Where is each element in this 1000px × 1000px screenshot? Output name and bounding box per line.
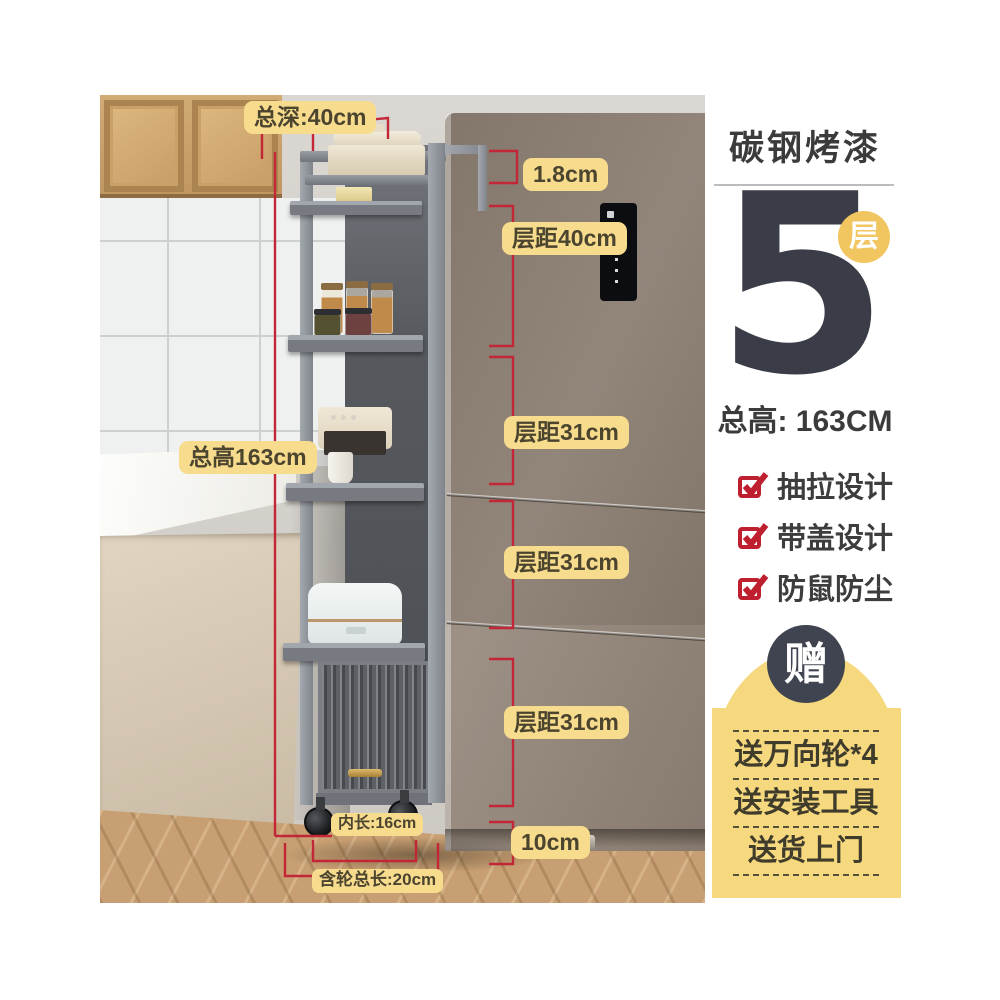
rack-tray-4 [283, 643, 425, 661]
tier-unit-badge: 层 [838, 211, 890, 263]
rack-tray-3 [286, 483, 424, 501]
product-listing-image: 总深:40cm 总高163cm 1.8cm 层距40cm 层距31cm 层距31… [0, 0, 1000, 1000]
tier-count: 5 [716, 162, 889, 410]
rack-tray-1 [290, 201, 422, 215]
gift-item: 送安装工具 [733, 778, 879, 826]
label-tier-gap-3: 层距31cm [504, 546, 629, 579]
gift-item: 送货上门 [733, 826, 879, 874]
label-total-height: 总高163cm [179, 441, 317, 474]
total-height-text: 总高: 163CM [705, 396, 905, 440]
casserole-pot [328, 145, 425, 176]
label-tier-gap-4: 层距31cm [504, 706, 629, 739]
coffee-machine-button [341, 415, 346, 420]
checkbox-check-icon [737, 521, 769, 551]
label-total-depth: 总深:40cm [244, 101, 376, 134]
feature-label: 防鼠防尘 [777, 566, 893, 608]
label-inner-length: 内长:16cm [331, 813, 423, 836]
caster-wheel [304, 807, 334, 837]
label-tier-gap-2: 层距31cm [504, 416, 629, 449]
coffee-cup [328, 452, 353, 484]
coffee-machine-button [331, 415, 336, 420]
rack-floor-shadow [280, 837, 550, 873]
kitchen-photo [100, 95, 705, 903]
rack-handle-leg [478, 145, 487, 211]
coffee-machine-button [351, 415, 356, 420]
cabinet-door [104, 100, 184, 192]
feature-label: 带盖设计 [777, 515, 893, 557]
base-cabinet [100, 533, 302, 827]
checkbox-check-icon [737, 470, 769, 500]
feature-item: 带盖设计 [737, 515, 893, 557]
rack-right-post [428, 143, 445, 803]
label-length-with-wheels: 含轮总长:20cm [312, 869, 443, 893]
gift-item: 送万向轮*4 [733, 730, 879, 778]
door-handle [348, 769, 382, 777]
rack-tray-2 [288, 335, 423, 352]
gift-list-end [733, 874, 879, 876]
gift-list: 送万向轮*4 送安装工具 送货上门 [733, 730, 879, 876]
feature-item: 防鼠防尘 [737, 566, 893, 608]
butter-box [336, 187, 372, 202]
rice-cooker [308, 583, 402, 645]
label-bottom-clearance: 10cm [511, 826, 590, 859]
spice-jar-small [314, 314, 341, 336]
label-top-gap: 1.8cm [523, 158, 608, 191]
gift-badge: 赠 [767, 625, 845, 703]
rack-base [316, 793, 432, 805]
spice-jar-small [345, 313, 372, 336]
rack-left-post [300, 157, 313, 805]
checkbox-check-icon [737, 572, 769, 602]
label-tier-gap-1: 层距40cm [502, 222, 627, 255]
feature-item: 抽拉设计 [737, 464, 893, 506]
feature-label: 抽拉设计 [777, 464, 893, 506]
rack-shelf-1 [305, 175, 435, 185]
feature-list: 抽拉设计 带盖设计 防鼠防尘 [737, 464, 893, 608]
spice-jar [371, 289, 393, 334]
